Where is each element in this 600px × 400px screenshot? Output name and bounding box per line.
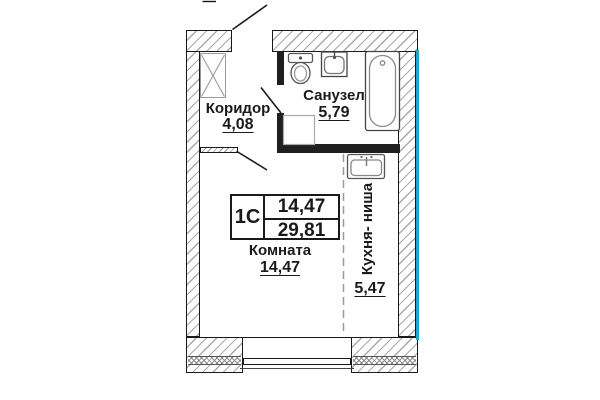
unit-code: 1С [232, 196, 265, 238]
insulation-strip-left [188, 356, 241, 365]
bathroom-area: 5,79 [298, 105, 370, 122]
corridor-area: 4,08 [200, 117, 276, 134]
window-sill-line [240, 368, 354, 369]
toilet-icon [289, 54, 313, 84]
insulation-strip-right [353, 356, 416, 365]
bathroom-sink-icon [322, 52, 348, 77]
floor-plan: Коридор 4,08 Санузел 5,79 Комната 14,47 … [0, 0, 600, 400]
entrance-door-icon [233, 5, 268, 30]
bathroom-wall-upper [277, 52, 284, 85]
facade-accent-line [416, 50, 419, 340]
ventilation-shaft [200, 53, 226, 98]
bathroom-label: Санузел [298, 88, 370, 104]
top-left-wall [186, 30, 232, 52]
unit-info-box: 1С 14,47 29,81 [230, 194, 340, 240]
unit-room-area: 14,47 [265, 196, 338, 220]
window-icon [243, 358, 351, 365]
bathroom-bottom-wall [277, 144, 400, 153]
living-room-area: 14,47 [240, 260, 320, 277]
right-wall [398, 30, 416, 337]
left-wall [186, 30, 200, 337]
kitchen-label: Кухня- ниша [360, 174, 378, 284]
window-recess-edge [243, 337, 351, 338]
bottom-right-wall [351, 337, 418, 373]
bottom-left-wall [186, 337, 243, 373]
kitchen-area: 5,47 [340, 281, 400, 298]
living-room-label: Комната [240, 243, 320, 259]
corridor-label: Коридор [200, 101, 276, 117]
top-right-wall [272, 30, 418, 52]
unit-total-area: 29,81 [265, 220, 338, 242]
corridor-partition [200, 147, 238, 153]
bathtub-icon [366, 52, 400, 131]
room-door-icon [237, 152, 267, 171]
